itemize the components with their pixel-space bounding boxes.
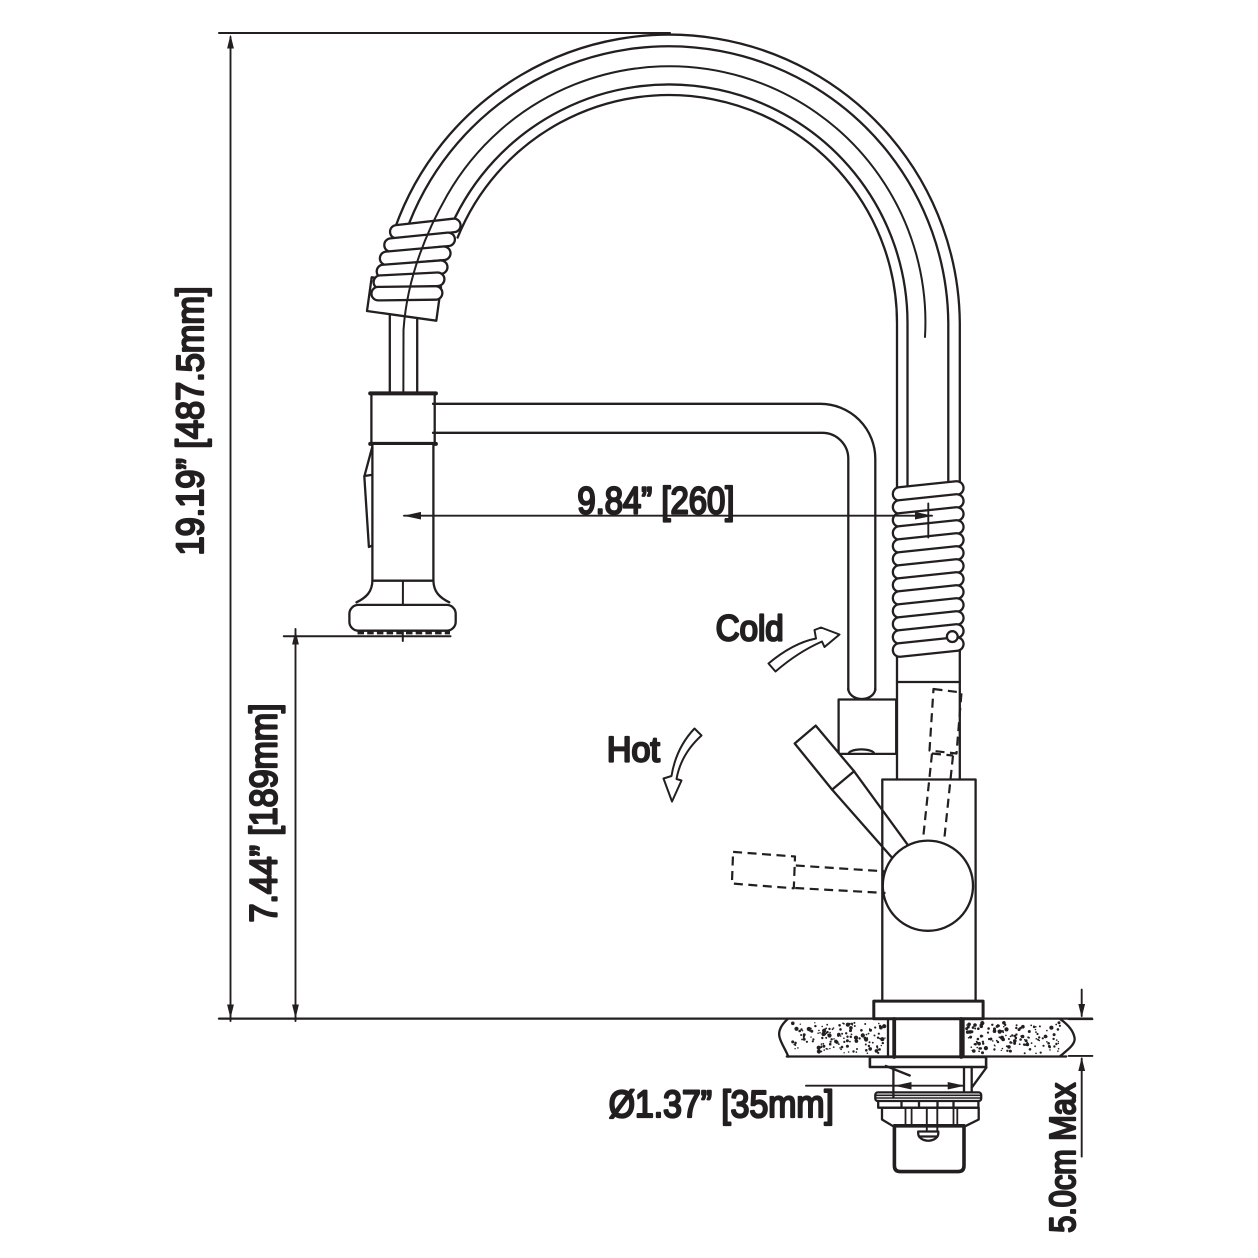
- svg-text:Hot: Hot: [607, 731, 660, 770]
- svg-text:5.0cm Max: 5.0cm Max: [1042, 1083, 1083, 1233]
- svg-text:19.19” [487.5mm]: 19.19” [487.5mm]: [170, 287, 212, 556]
- svg-text:9.84” [260]: 9.84” [260]: [577, 480, 734, 522]
- svg-text:Ø1.37” [35mm]: Ø1.37” [35mm]: [609, 1084, 834, 1126]
- svg-text:Cold: Cold: [716, 608, 784, 649]
- svg-text:7.44” [189mm]: 7.44” [189mm]: [244, 704, 286, 923]
